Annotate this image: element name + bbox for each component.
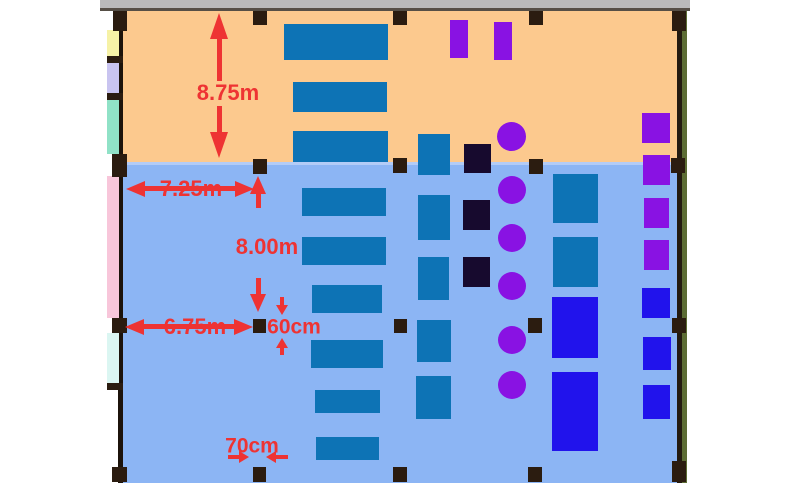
dimension-annotations: 8.75m 7.25m 8.00m 60cm — [0, 0, 800, 500]
dim-shaft — [256, 192, 261, 208]
dim-label-6-75m: 6.75m — [164, 316, 226, 338]
dim-label-8-75m: 8.75m — [197, 82, 259, 104]
arrow-down-icon — [276, 305, 288, 315]
dim-label-8-00m: 8.00m — [236, 236, 298, 258]
dim-label-60cm: 60cm — [267, 317, 321, 338]
arrow-right-icon — [239, 451, 249, 463]
arrow-down-icon — [210, 132, 228, 158]
arrow-right-icon — [234, 319, 253, 335]
dim-shaft — [217, 106, 222, 134]
dim-shaft — [217, 35, 222, 81]
arrow-down-icon — [250, 294, 266, 312]
dim-shaft — [280, 347, 284, 355]
floor-plan: 8.75m 7.25m 8.00m 60cm — [0, 0, 800, 500]
dim-label-7-25m: 7.25m — [160, 178, 222, 200]
dim-shaft — [275, 455, 288, 459]
